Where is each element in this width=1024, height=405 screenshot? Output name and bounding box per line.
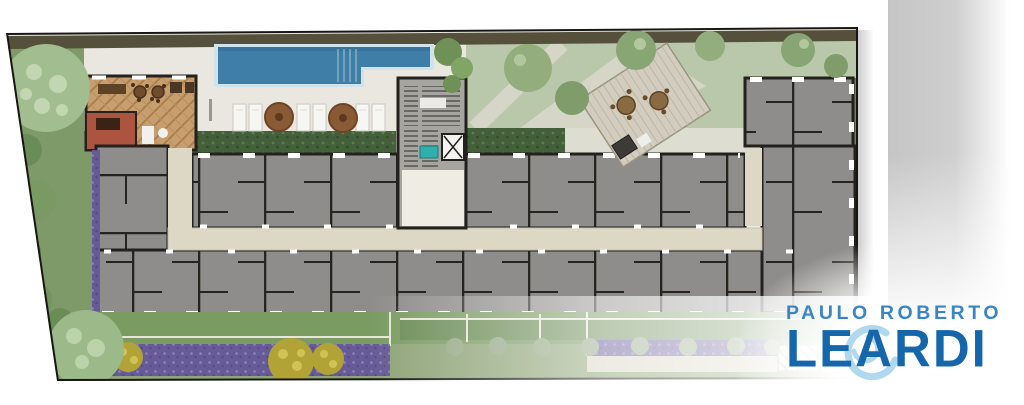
service-room — [86, 112, 136, 150]
hedge-strip-left — [192, 131, 396, 156]
sun-loungers — [209, 99, 385, 131]
right-corridor — [745, 148, 762, 226]
mat-feature — [420, 146, 438, 158]
elevator-lobby — [402, 170, 464, 226]
hedge-strip-right — [466, 128, 565, 155]
site-plan-image: PAULO ROBERTO LEARDI — [0, 0, 1024, 405]
central-corridor — [168, 228, 762, 250]
pool-shower — [209, 99, 212, 121]
brand-name-main: LEARDI — [786, 325, 1014, 374]
entry-corridor — [168, 148, 192, 230]
party-room — [86, 76, 196, 150]
leardi-watermark-logo: PAULO ROBERTO LEARDI — [786, 303, 1014, 372]
stair-elevator-core — [398, 78, 466, 228]
upper-row-units — [192, 154, 745, 228]
right-wing-upper-units — [745, 78, 853, 146]
